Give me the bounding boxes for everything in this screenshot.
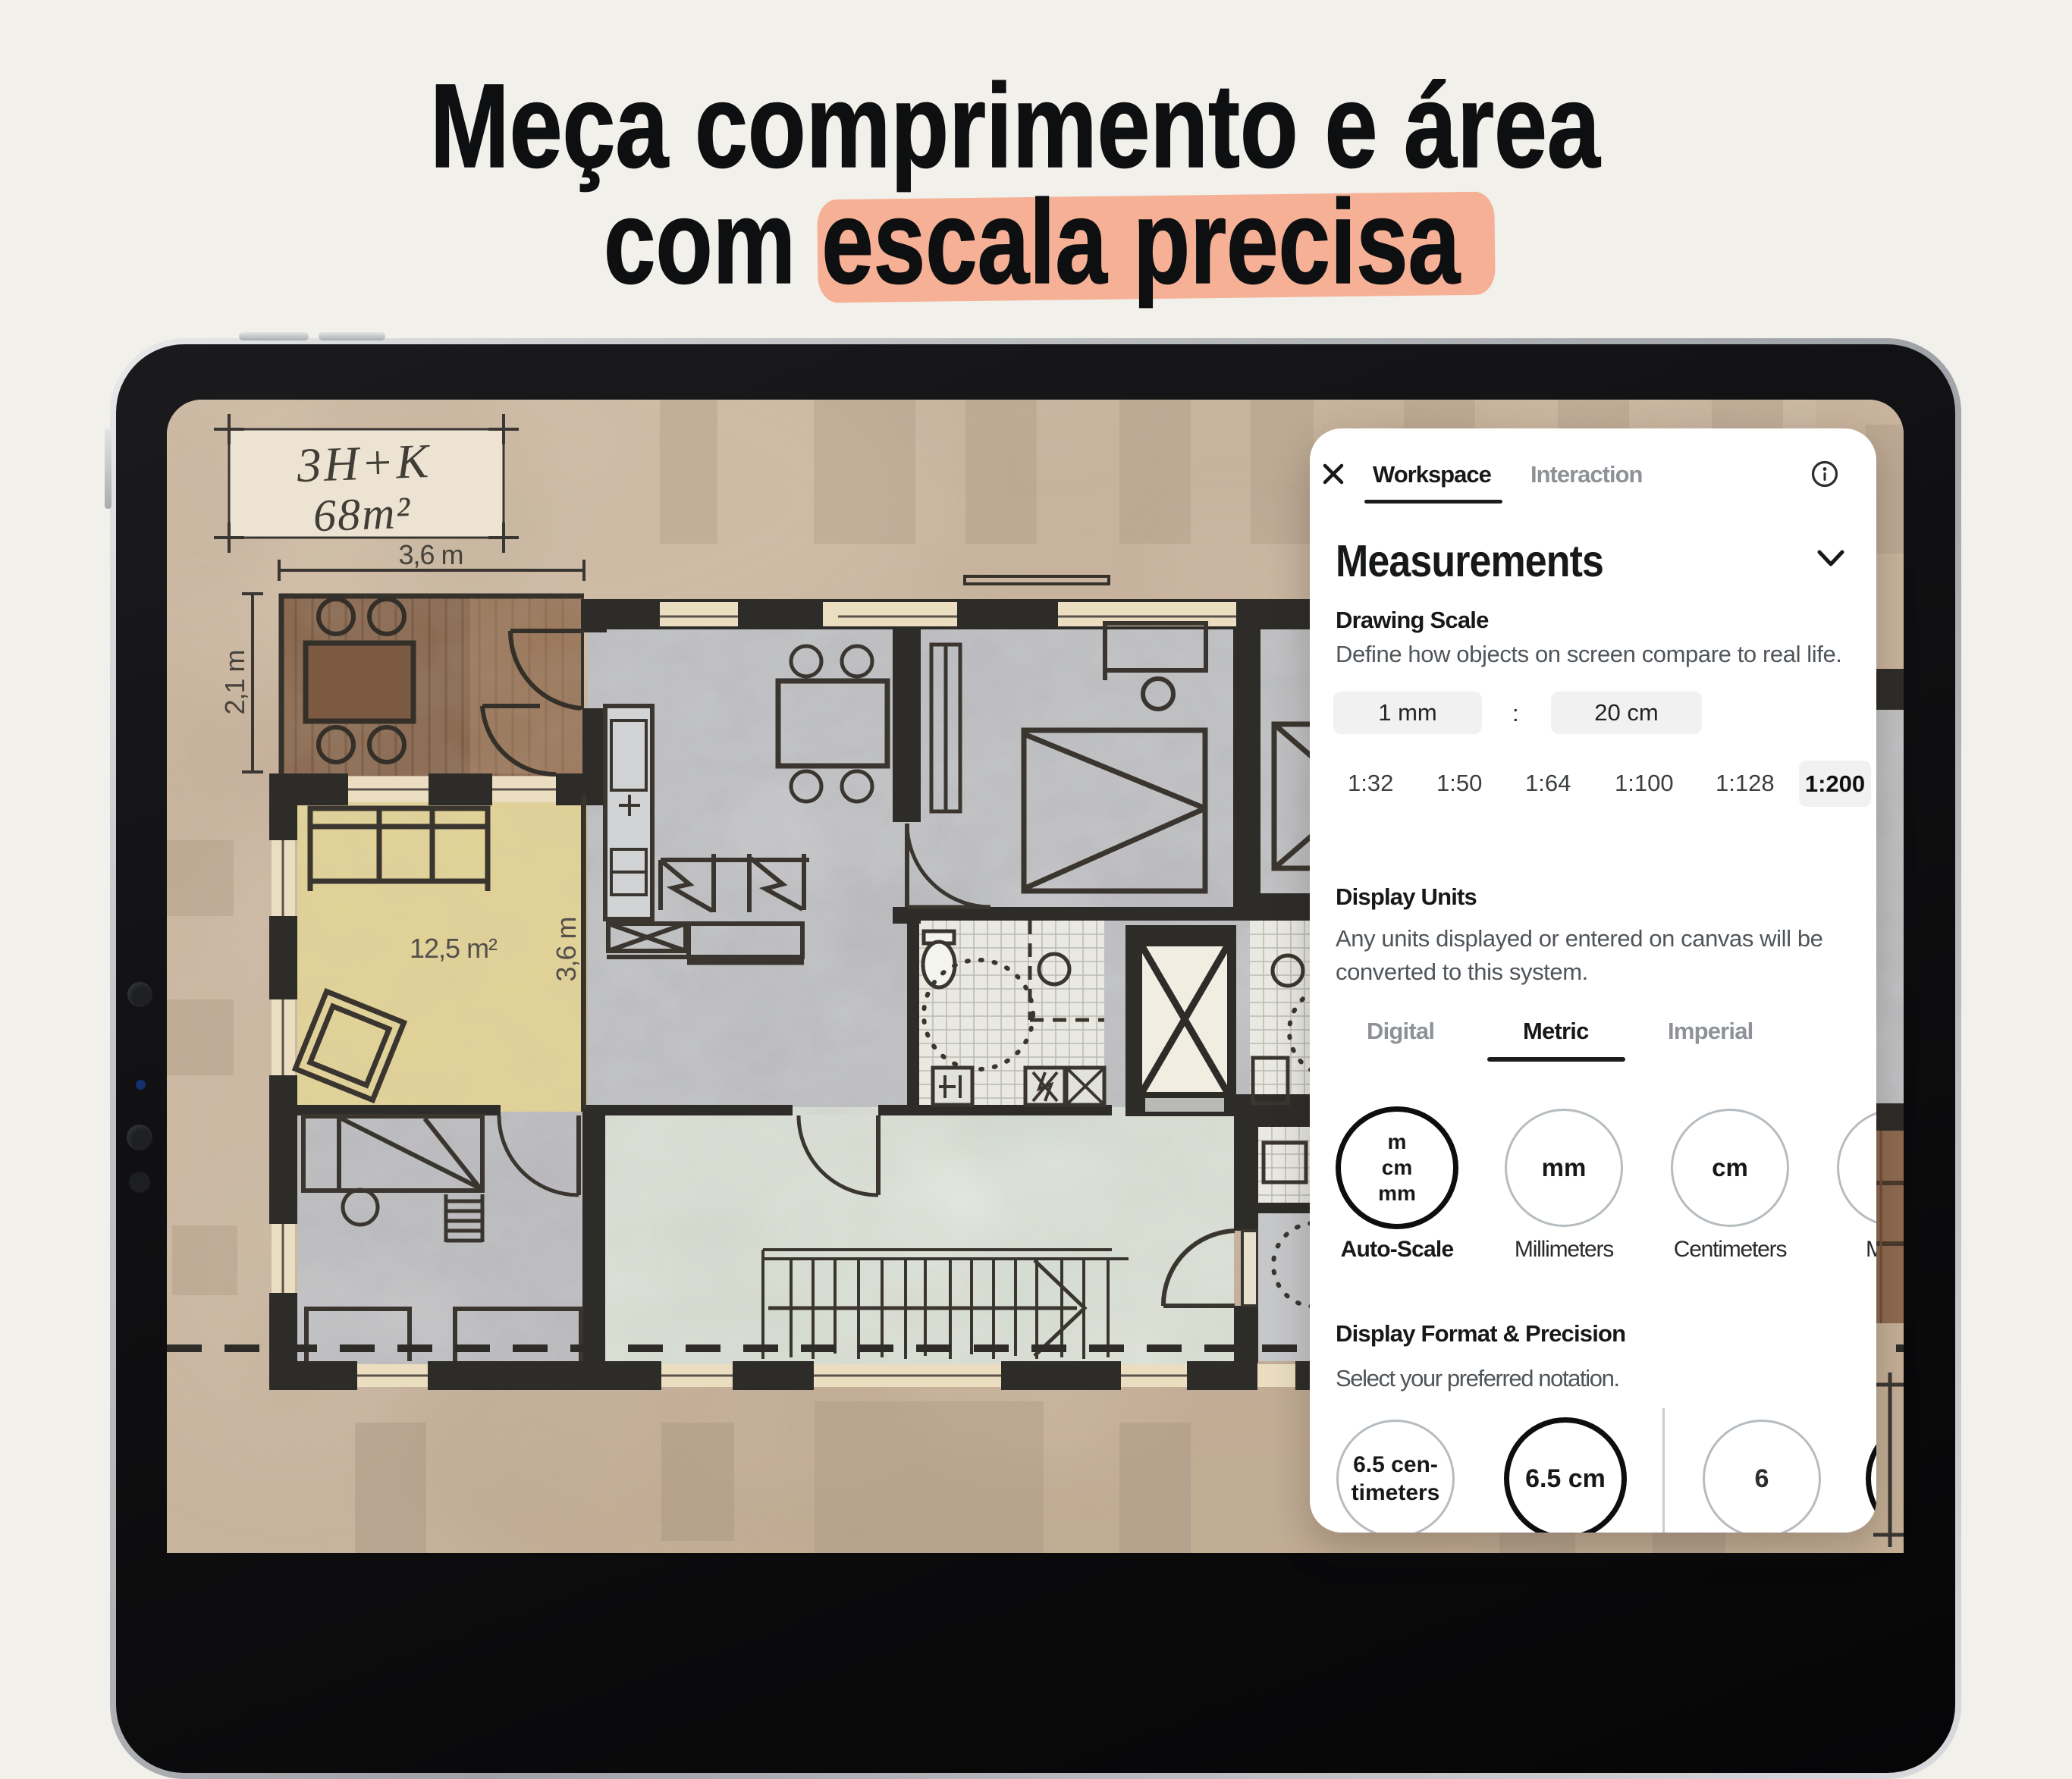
svg-text:3H+K: 3H+K xyxy=(296,434,432,492)
svg-text:3,6 m: 3,6 m xyxy=(398,539,463,570)
svg-text:12,5 m²: 12,5 m² xyxy=(410,933,498,964)
svg-text:2,1 m: 2,1 m xyxy=(219,650,250,714)
svg-text:3,6 m: 3,6 m xyxy=(551,917,582,981)
svg-text:68m²: 68m² xyxy=(312,488,413,541)
